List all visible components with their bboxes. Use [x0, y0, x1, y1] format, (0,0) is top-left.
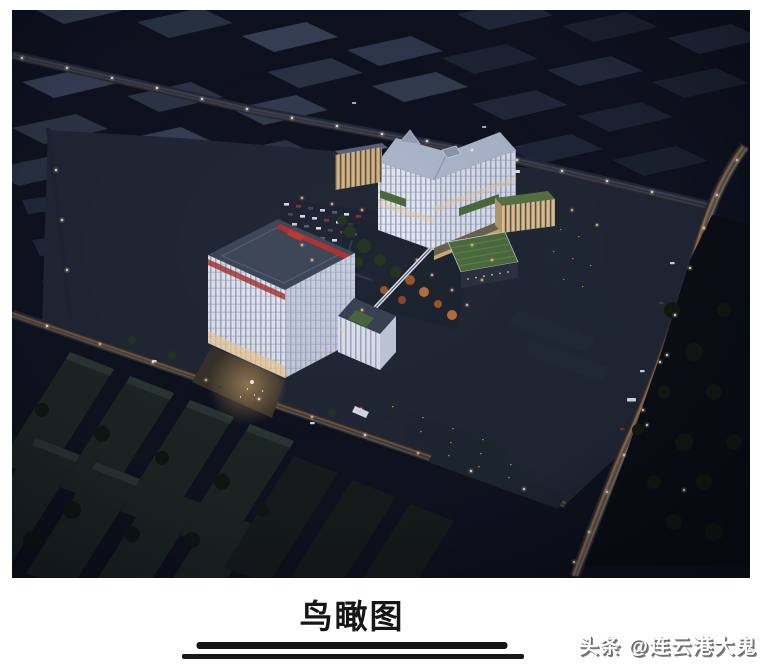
aerial-photo-scene: 夜景鸟瞰效果图：园区两栋白色亮灯主楼，绿化庭院与停车场，周边厂房、住宅及道路车流…	[12, 10, 750, 578]
caption-underline-thick	[197, 642, 508, 649]
caption-underline-thin	[182, 654, 524, 659]
vignette-overlay	[12, 10, 750, 578]
aerial-photo: 夜景鸟瞰效果图：园区两栋白色亮灯主楼，绿化庭院与停车场，周边厂房、住宅及道路车流…	[12, 10, 750, 578]
caption-title: 鸟瞰图	[300, 590, 405, 638]
watermark-text: 头条 @连云港大鬼	[578, 630, 757, 659]
